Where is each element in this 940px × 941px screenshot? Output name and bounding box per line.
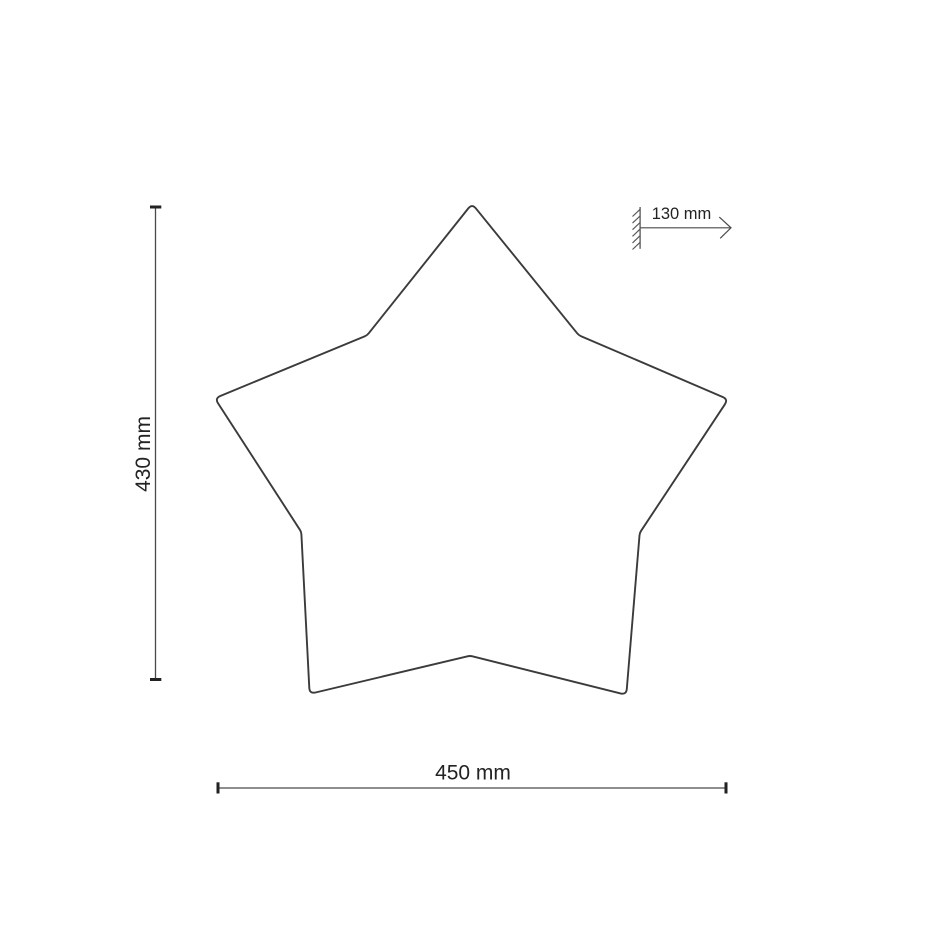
svg-text:430 mm: 430 mm (132, 416, 155, 492)
svg-text:450 mm: 450 mm (435, 762, 511, 785)
svg-text:130 mm: 130 mm (652, 205, 712, 223)
